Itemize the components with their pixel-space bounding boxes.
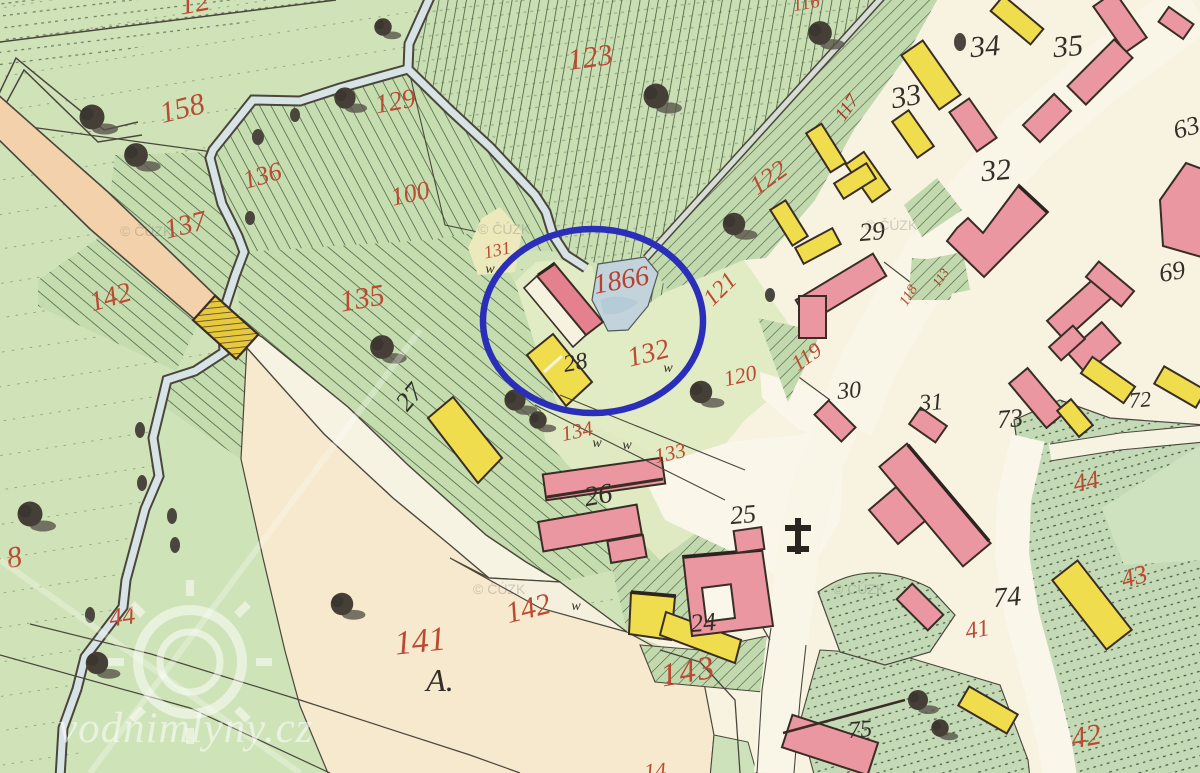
svg-text:28: 28 — [561, 348, 589, 378]
svg-text:vodnimlyny.cz: vodnimlyny.cz — [58, 705, 313, 752]
svg-text:141: 141 — [393, 620, 448, 662]
svg-text:32: 32 — [979, 153, 1013, 189]
svg-text:25: 25 — [729, 499, 757, 530]
svg-text:75: 75 — [847, 716, 873, 744]
svg-text:33: 33 — [887, 78, 923, 116]
svg-text:34: 34 — [968, 29, 1002, 65]
svg-text:31: 31 — [917, 389, 944, 417]
svg-text:123: 123 — [565, 38, 614, 77]
svg-text:© ČÚZK: © ČÚZK — [865, 217, 918, 233]
svg-text:© ČÚZK: © ČÚZK — [833, 581, 886, 597]
svg-text:w: w — [571, 599, 581, 614]
svg-text:w: w — [485, 262, 495, 277]
svg-text:w: w — [622, 438, 632, 453]
svg-text:30: 30 — [835, 377, 862, 405]
svg-text:14: 14 — [643, 757, 667, 773]
svg-text:© ČÚZK: © ČÚZK — [473, 581, 526, 597]
svg-text:42: 42 — [1068, 718, 1103, 756]
svg-text:73: 73 — [996, 403, 1024, 434]
svg-text:A.: A. — [424, 662, 454, 698]
svg-text:26: 26 — [582, 478, 615, 513]
svg-text:© ČÚZK: © ČÚZK — [478, 221, 531, 237]
svg-text:24: 24 — [689, 607, 717, 638]
svg-text:w: w — [663, 361, 673, 376]
svg-text:© ČÚZK: © ČÚZK — [120, 223, 173, 239]
svg-text:41: 41 — [963, 615, 991, 645]
svg-text:72: 72 — [1128, 386, 1152, 413]
svg-text:w: w — [592, 436, 602, 451]
svg-text:69: 69 — [1157, 255, 1188, 288]
svg-text:74: 74 — [992, 581, 1023, 614]
svg-text:35: 35 — [1051, 29, 1085, 65]
